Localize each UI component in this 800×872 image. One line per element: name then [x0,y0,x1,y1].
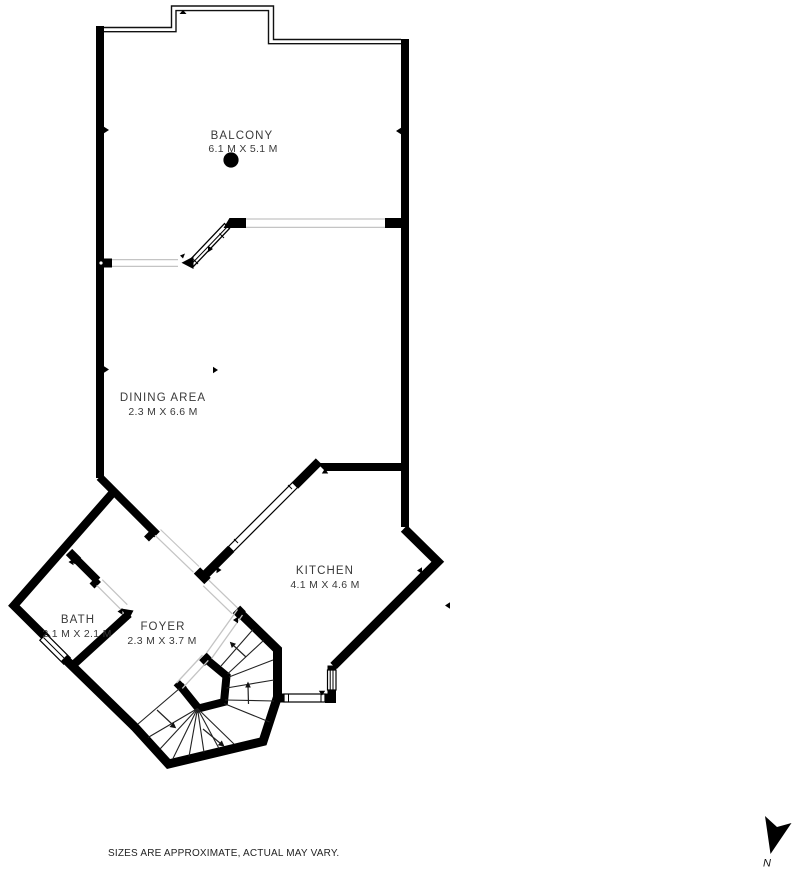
svg-text:N: N [763,858,771,870]
